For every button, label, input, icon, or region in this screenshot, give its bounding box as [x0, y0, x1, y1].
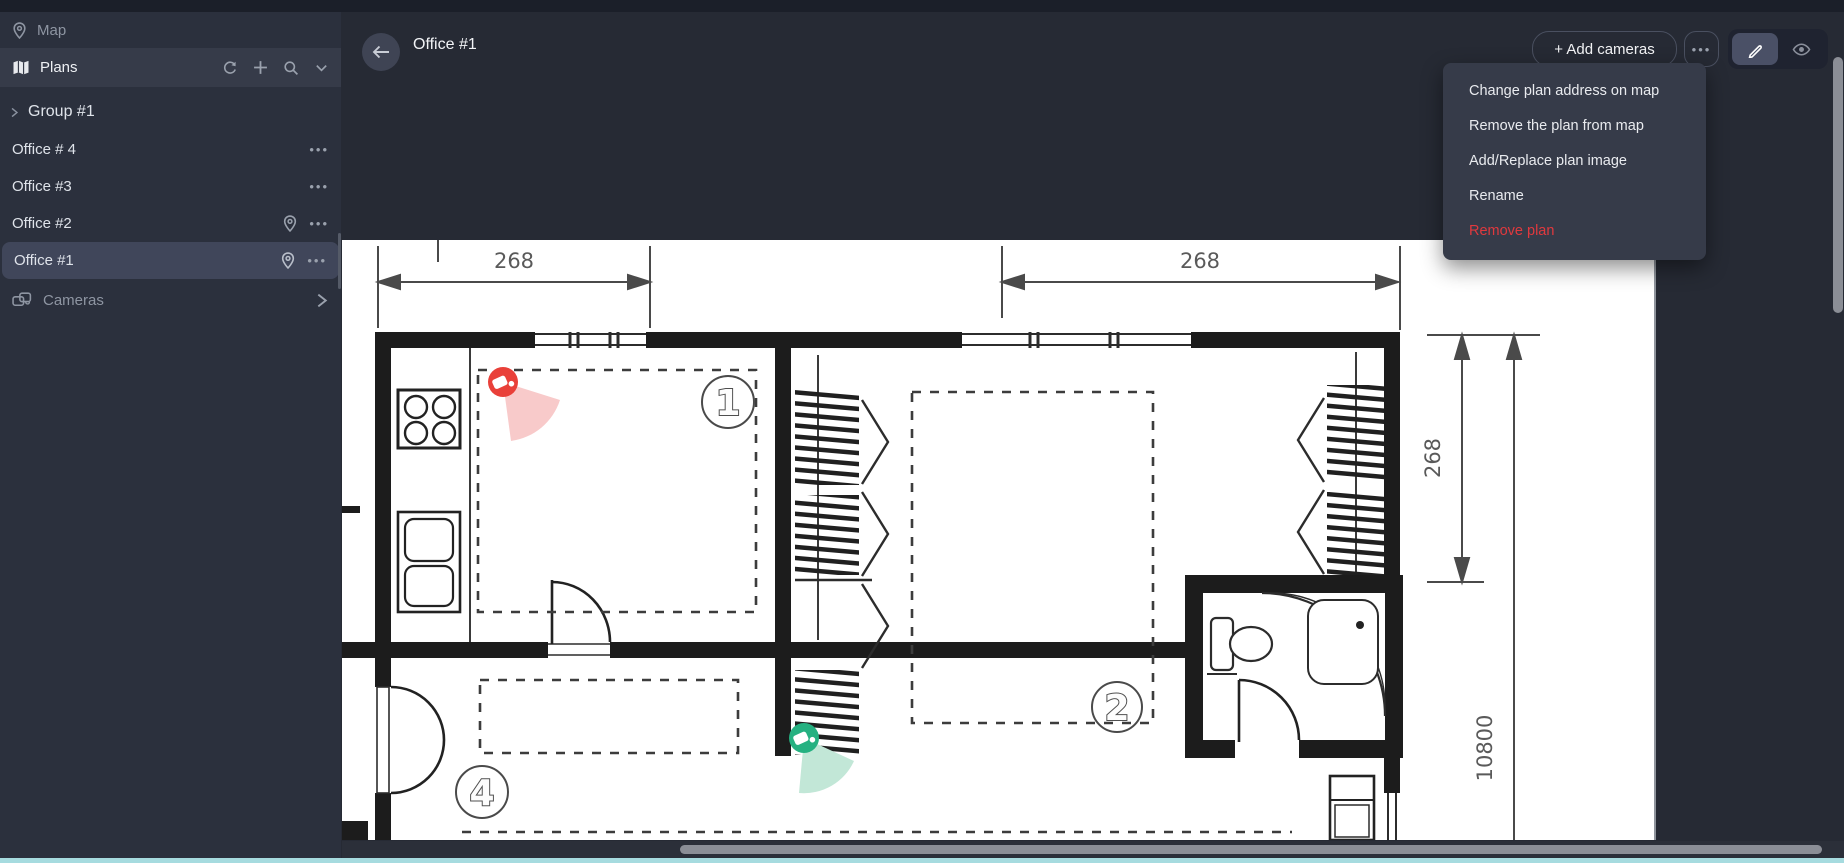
- menu-item-replace-image[interactable]: Add/Replace plan image: [1443, 144, 1706, 179]
- wardrobe-right: [1298, 352, 1384, 580]
- plan-item-label: Office #2: [12, 215, 273, 232]
- item-more-icon[interactable]: •••: [307, 254, 327, 267]
- plan-item-label: Office #1: [14, 252, 271, 269]
- dim-right-total: 10800: [1473, 715, 1497, 782]
- cameras-label: Cameras: [43, 292, 304, 309]
- room-number-4: 4: [469, 773, 494, 814]
- map-folded-icon: [12, 60, 30, 75]
- plan-item-label: Office # 4: [12, 141, 299, 158]
- plans-tree: Group #1 Office # 4 ••• Office #3 ••• Of…: [0, 87, 341, 321]
- edit-mode-button[interactable]: [1732, 33, 1778, 65]
- menu-item-change-address[interactable]: Change plan address on map: [1443, 74, 1706, 109]
- chevron-right-icon[interactable]: [314, 292, 329, 309]
- pencil-icon: [1747, 41, 1764, 58]
- add-cameras-button[interactable]: + Add cameras: [1532, 31, 1677, 67]
- entrance-double-door: [377, 687, 444, 793]
- sidebar-item-office-2[interactable]: Office #2 •••: [0, 205, 341, 242]
- floor-plan-canvas[interactable]: 268 268 268 10800: [342, 240, 1656, 840]
- group-label: Group #1: [28, 103, 329, 121]
- menu-item-rename[interactable]: Rename: [1443, 179, 1706, 214]
- pinned-on-map-icon: [283, 215, 297, 232]
- wardrobe-left: [795, 355, 888, 755]
- kitchen-fixtures: [398, 348, 470, 642]
- sidebar-item-cameras[interactable]: Cameras: [0, 279, 341, 321]
- location-pin-icon: [12, 22, 27, 39]
- item-more-icon[interactable]: •••: [309, 143, 329, 156]
- sidebar-item-office-4[interactable]: Office # 4 •••: [0, 131, 341, 168]
- vertical-scrollbar-thumb[interactable]: [1833, 57, 1843, 313]
- chevron-right-icon: [8, 106, 21, 119]
- mode-toggle: [1728, 29, 1828, 69]
- arrow-left-icon: [371, 44, 391, 60]
- sidebar-section-plans[interactable]: Plans: [0, 48, 341, 87]
- sidebar-scrollbar[interactable]: [338, 233, 341, 289]
- pinned-on-map-icon: [281, 252, 295, 269]
- dim-right-depth: 268: [1421, 438, 1445, 478]
- plan-item-label: Office #3: [12, 178, 299, 195]
- bathroom: [1185, 575, 1403, 758]
- add-plan-icon[interactable]: [253, 60, 268, 75]
- sidebar: Map Plans: [0, 12, 341, 863]
- window-bottom-accent: [0, 858, 1844, 863]
- plan-context-menu: Change plan address on map Remove the pl…: [1443, 63, 1706, 260]
- view-mode-button[interactable]: [1778, 33, 1824, 65]
- sidebar-item-office-3[interactable]: Office #3 •••: [0, 168, 341, 205]
- wall-thin-lines: [1388, 793, 1396, 840]
- more-icon: •••: [1692, 43, 1712, 56]
- item-more-icon[interactable]: •••: [309, 180, 329, 193]
- dim-top-left: 268: [494, 249, 534, 273]
- cabinet: [1330, 776, 1374, 840]
- item-more-icon[interactable]: •••: [309, 217, 329, 230]
- tree-group[interactable]: Group #1: [0, 93, 341, 131]
- menu-item-remove-from-map[interactable]: Remove the plan from map: [1443, 109, 1706, 144]
- map-label: Map: [37, 22, 329, 39]
- eye-icon: [1792, 42, 1811, 57]
- room-number-2: 2: [1104, 688, 1129, 729]
- sidebar-item-map[interactable]: Map: [0, 12, 341, 48]
- chevron-down-icon[interactable]: [314, 60, 329, 75]
- page-title: Office #1: [413, 36, 477, 54]
- menu-item-remove-plan[interactable]: Remove plan: [1443, 214, 1706, 249]
- back-button[interactable]: [362, 33, 400, 71]
- cameras-icon: [12, 292, 33, 309]
- sidebar-item-office-1-selected[interactable]: Office #1 •••: [2, 242, 339, 279]
- furniture-outline: [462, 370, 1292, 832]
- horizontal-scrollbar-thumb[interactable]: [680, 845, 1822, 854]
- room-number-1: 1: [715, 383, 740, 424]
- app-window: Map Plans: [0, 0, 1844, 863]
- camera-marker-red[interactable]: [488, 367, 560, 441]
- plans-label: Plans: [40, 59, 212, 76]
- refresh-icon[interactable]: [222, 60, 238, 76]
- door-room1: [548, 580, 610, 655]
- window-top-strip: [0, 0, 1844, 12]
- search-icon[interactable]: [283, 60, 299, 76]
- dim-top-right: 268: [1180, 249, 1220, 273]
- plan-more-button[interactable]: •••: [1684, 31, 1719, 67]
